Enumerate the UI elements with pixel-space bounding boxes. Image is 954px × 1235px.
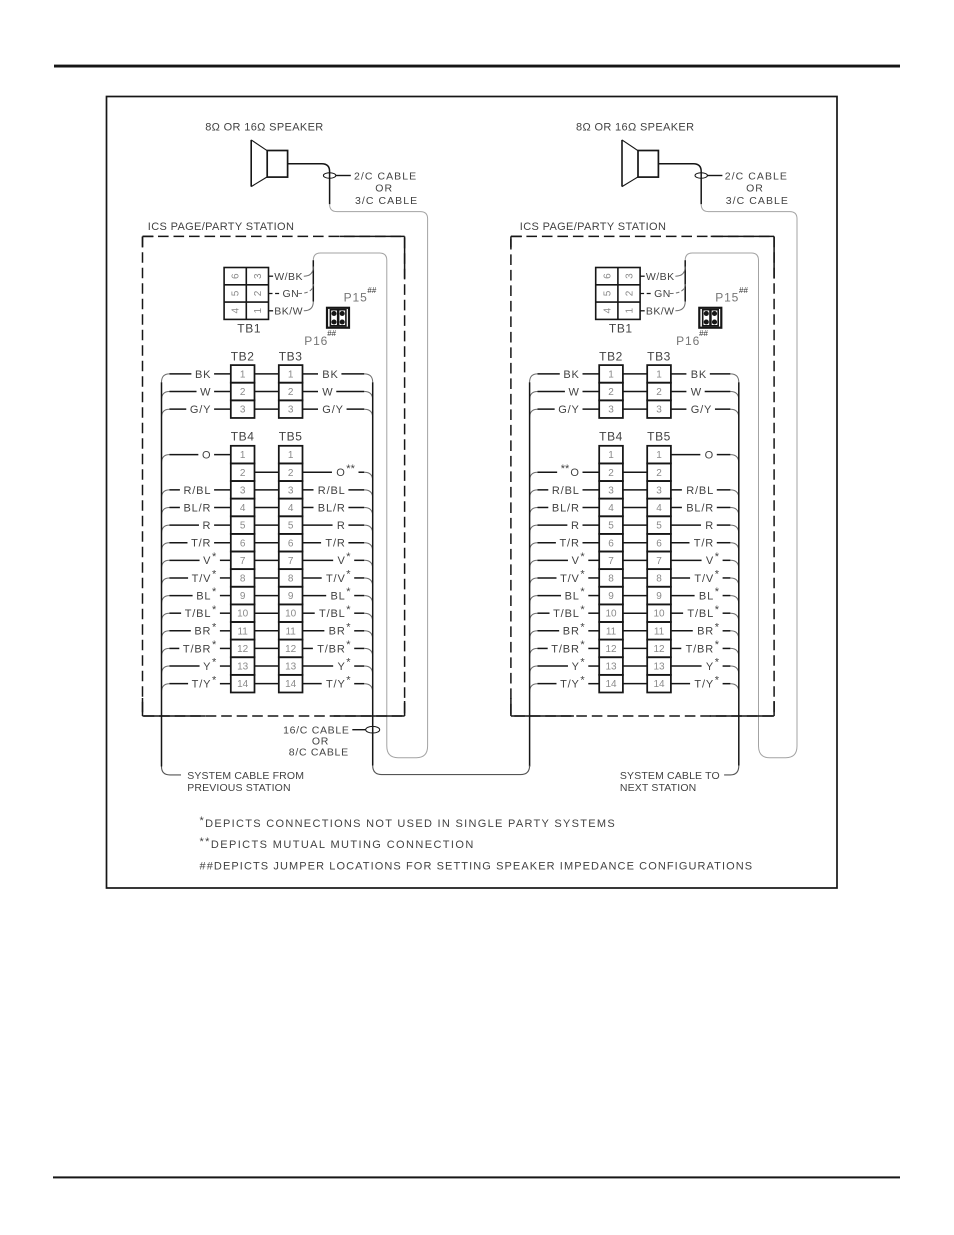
svg-text:*: *	[715, 586, 720, 598]
svg-text:*: *	[580, 657, 585, 669]
svg-text:BL/R: BL/R	[552, 502, 580, 514]
svg-text:1: 1	[240, 450, 246, 461]
svg-text:11: 11	[285, 626, 296, 637]
svg-text:R/BL: R/BL	[552, 485, 580, 497]
svg-text:W: W	[691, 386, 702, 398]
svg-text:BL: BL	[330, 591, 345, 603]
svg-text:6: 6	[240, 538, 246, 549]
svg-text:TB4: TB4	[231, 430, 255, 444]
svg-text:BR: BR	[563, 626, 580, 638]
svg-text:V: V	[203, 555, 211, 567]
svg-text:Y: Y	[572, 661, 580, 673]
svg-text:1: 1	[625, 308, 636, 314]
svg-text:11: 11	[606, 626, 617, 637]
svg-text:GN: GN	[283, 288, 300, 300]
svg-text:**: **	[561, 463, 570, 475]
svg-text:8: 8	[240, 574, 246, 585]
svg-text:Y: Y	[203, 661, 211, 673]
svg-text:W/BK: W/BK	[646, 271, 675, 283]
svg-text:2: 2	[656, 387, 662, 398]
svg-text:4: 4	[608, 503, 614, 514]
svg-text:5: 5	[231, 290, 242, 296]
svg-text:R: R	[571, 520, 580, 532]
svg-text:14: 14	[605, 679, 617, 690]
svg-text:8: 8	[288, 574, 294, 585]
svg-text:4: 4	[656, 503, 662, 514]
svg-text:4: 4	[231, 308, 242, 314]
svg-text:*: *	[715, 657, 720, 669]
svg-text:3/C CABLE: 3/C CABLE	[726, 195, 789, 207]
svg-text:T/R: T/R	[325, 538, 345, 550]
svg-text:6: 6	[608, 538, 614, 549]
svg-text:9: 9	[608, 591, 614, 602]
svg-text:13: 13	[285, 662, 297, 673]
svg-text:W: W	[569, 386, 580, 398]
svg-text:12: 12	[285, 644, 297, 655]
svg-text:5: 5	[656, 521, 662, 532]
svg-text:5: 5	[602, 290, 613, 296]
svg-text:3: 3	[288, 485, 294, 496]
svg-text:6: 6	[602, 273, 613, 279]
svg-text:3/C CABLE: 3/C CABLE	[355, 195, 418, 207]
svg-text:BK/W: BK/W	[646, 306, 675, 318]
svg-text:GN: GN	[654, 288, 671, 300]
svg-text:V: V	[706, 555, 714, 567]
svg-text:*: *	[580, 604, 585, 616]
svg-text:*: *	[346, 657, 351, 669]
svg-text:TB2: TB2	[231, 350, 255, 364]
svg-text:Y: Y	[337, 661, 345, 673]
svg-text:##: ##	[739, 286, 748, 295]
svg-text:2/C CABLE: 2/C CABLE	[725, 170, 788, 182]
svg-text:BL/R: BL/R	[183, 502, 211, 514]
svg-text:6: 6	[288, 538, 294, 549]
svg-text:*: *	[346, 639, 351, 651]
svg-text:7: 7	[608, 556, 614, 567]
svg-text:14: 14	[285, 679, 297, 690]
svg-text:7: 7	[288, 556, 294, 567]
svg-text:2: 2	[253, 290, 264, 296]
svg-text:4: 4	[602, 308, 613, 314]
svg-text:OR: OR	[312, 735, 329, 747]
svg-text:6: 6	[656, 538, 662, 549]
svg-text:13: 13	[653, 662, 665, 673]
svg-text:OR: OR	[746, 183, 764, 195]
svg-text:3: 3	[288, 405, 294, 416]
svg-text:SYSTEM CABLE FROM: SYSTEM CABLE FROM	[187, 770, 304, 782]
svg-text:2: 2	[288, 387, 294, 398]
svg-text:12: 12	[653, 644, 665, 655]
svg-text:3: 3	[625, 273, 636, 279]
svg-text:NEXT STATION: NEXT STATION	[620, 782, 696, 794]
svg-text:8Ω OR 16Ω SPEAKER: 8Ω OR 16Ω SPEAKER	[576, 122, 694, 134]
svg-text:**DEPICTS MUTUAL MUTING CONNEC: **DEPICTS MUTUAL MUTING CONNECTION	[200, 836, 475, 851]
svg-text:7: 7	[656, 556, 662, 567]
svg-text:*: *	[580, 551, 585, 563]
svg-text:6: 6	[231, 273, 242, 279]
svg-text:1: 1	[288, 370, 294, 381]
svg-text:1: 1	[288, 450, 294, 461]
svg-text:G/Y: G/Y	[691, 404, 713, 416]
svg-text:7: 7	[240, 556, 246, 567]
svg-text:*: *	[346, 604, 351, 616]
svg-text:*: *	[580, 569, 585, 581]
svg-text:BL: BL	[196, 591, 211, 603]
svg-text:O: O	[336, 467, 345, 479]
svg-text:*: *	[212, 551, 217, 563]
svg-text:2/C CABLE: 2/C CABLE	[354, 170, 417, 182]
svg-text:3: 3	[608, 405, 614, 416]
svg-text:2: 2	[656, 468, 662, 479]
svg-text:*: *	[715, 639, 720, 651]
svg-text:T/V: T/V	[192, 573, 212, 585]
svg-text:8: 8	[656, 574, 662, 585]
svg-text:T/BL: T/BL	[687, 608, 714, 620]
svg-text:*: *	[580, 586, 585, 598]
svg-text:P15: P15	[344, 291, 368, 305]
svg-text:T/Y: T/Y	[192, 679, 212, 691]
svg-text:*: *	[212, 674, 217, 686]
svg-text:T/BL: T/BL	[185, 608, 212, 620]
svg-text:TB1: TB1	[237, 322, 261, 336]
svg-text:BK: BK	[563, 369, 579, 381]
svg-text:*: *	[580, 639, 585, 651]
svg-text:R/BL: R/BL	[686, 485, 714, 497]
svg-text:BL/R: BL/R	[686, 502, 714, 514]
svg-text:12: 12	[237, 644, 249, 655]
svg-text:5: 5	[288, 521, 294, 532]
svg-text:V: V	[572, 555, 580, 567]
svg-text:BK: BK	[322, 369, 338, 381]
svg-text:P16: P16	[304, 334, 328, 348]
svg-text:*DEPICTS CONNECTIONS NOT USED: *DEPICTS CONNECTIONS NOT USED IN SINGLE …	[200, 815, 617, 830]
svg-text:*: *	[715, 551, 720, 563]
svg-text:13: 13	[237, 662, 249, 673]
svg-text:8: 8	[608, 574, 614, 585]
svg-text:TB1: TB1	[609, 322, 633, 336]
svg-text:11: 11	[237, 626, 248, 637]
svg-text:*: *	[212, 621, 217, 633]
svg-text:T/BL: T/BL	[319, 608, 346, 620]
svg-text:BR: BR	[329, 626, 346, 638]
svg-text:9: 9	[656, 591, 662, 602]
svg-text:*: *	[715, 604, 720, 616]
svg-text:T/V: T/V	[560, 573, 580, 585]
svg-text:14: 14	[653, 679, 665, 690]
svg-text:##: ##	[699, 329, 708, 338]
svg-text:R/BL: R/BL	[183, 485, 211, 497]
svg-text:2: 2	[625, 290, 636, 296]
svg-text:T/BR: T/BR	[317, 643, 345, 655]
svg-text:5: 5	[240, 521, 246, 532]
svg-text:10: 10	[653, 609, 665, 620]
svg-text:*: *	[346, 551, 351, 563]
svg-text:9: 9	[288, 591, 294, 602]
svg-text:10: 10	[285, 609, 297, 620]
svg-text:T/R: T/R	[559, 538, 579, 550]
svg-text:ICS PAGE/PARTY STATION: ICS PAGE/PARTY STATION	[520, 221, 666, 233]
svg-text:1: 1	[253, 308, 264, 314]
svg-text:2: 2	[240, 387, 246, 398]
svg-text:##DEPICTS JUMPER LOCATIONS FOR: ##DEPICTS JUMPER LOCATIONS FOR SETTING S…	[200, 861, 754, 873]
svg-text:*: *	[212, 586, 217, 598]
svg-text:8Ω OR 16Ω SPEAKER: 8Ω OR 16Ω SPEAKER	[205, 122, 323, 134]
svg-text:10: 10	[605, 609, 617, 620]
svg-text:T/BL: T/BL	[553, 608, 580, 620]
svg-text:TB5: TB5	[647, 430, 671, 444]
svg-text:13: 13	[605, 662, 617, 673]
svg-text:W: W	[322, 386, 333, 398]
svg-text:V: V	[337, 555, 345, 567]
svg-text:T/V: T/V	[326, 573, 346, 585]
svg-text:ICS PAGE/PARTY STATION: ICS PAGE/PARTY STATION	[148, 221, 294, 233]
svg-text:BR: BR	[194, 626, 211, 638]
svg-text:W: W	[200, 386, 211, 398]
svg-text:4: 4	[240, 503, 246, 514]
svg-text:14: 14	[237, 679, 249, 690]
svg-text:9: 9	[240, 591, 246, 602]
svg-text:BL: BL	[699, 591, 714, 603]
svg-text:Y: Y	[706, 661, 714, 673]
svg-text:BL/R: BL/R	[318, 502, 346, 514]
svg-text:*: *	[212, 604, 217, 616]
svg-text:BK/W: BK/W	[274, 306, 303, 318]
svg-text:G/Y: G/Y	[190, 404, 212, 416]
svg-text:T/BR: T/BR	[183, 643, 211, 655]
svg-text:P16: P16	[676, 334, 700, 348]
svg-text:3: 3	[608, 485, 614, 496]
svg-text:O: O	[202, 450, 211, 462]
svg-text:3: 3	[253, 273, 264, 279]
svg-text:TB5: TB5	[279, 430, 303, 444]
svg-text:2: 2	[240, 468, 246, 479]
svg-text:*: *	[346, 621, 351, 633]
svg-text:BR: BR	[697, 626, 714, 638]
svg-text:T/Y: T/Y	[560, 679, 580, 691]
svg-text:1: 1	[608, 370, 614, 381]
svg-text:1: 1	[656, 450, 662, 461]
svg-text:*: *	[212, 569, 217, 581]
svg-text:T/V: T/V	[694, 573, 714, 585]
svg-text:BK: BK	[691, 369, 707, 381]
svg-text:*: *	[715, 569, 720, 581]
svg-text:**: **	[346, 463, 355, 475]
svg-text:3: 3	[656, 405, 662, 416]
svg-text:2: 2	[608, 468, 614, 479]
svg-text:*: *	[580, 674, 585, 686]
svg-text:T/R: T/R	[191, 538, 211, 550]
svg-text:T/R: T/R	[694, 538, 714, 550]
svg-text:BK: BK	[195, 369, 211, 381]
svg-text:G/Y: G/Y	[322, 404, 344, 416]
svg-text:1: 1	[240, 370, 246, 381]
svg-text:W/BK: W/BK	[274, 271, 303, 283]
svg-text:R/BL: R/BL	[318, 485, 346, 497]
svg-text:##: ##	[367, 286, 376, 295]
svg-text:2: 2	[288, 468, 294, 479]
svg-text:1: 1	[608, 450, 614, 461]
svg-text:O: O	[570, 467, 579, 479]
svg-text:BL: BL	[565, 591, 580, 603]
svg-text:OR: OR	[375, 183, 393, 195]
svg-text:P15: P15	[715, 291, 739, 305]
svg-text:*: *	[346, 586, 351, 598]
svg-text:11: 11	[654, 626, 665, 637]
svg-text:*: *	[580, 621, 585, 633]
svg-text:12: 12	[605, 644, 617, 655]
svg-text:10: 10	[237, 609, 249, 620]
svg-text:T/BR: T/BR	[551, 643, 579, 655]
svg-text:TB3: TB3	[279, 350, 303, 364]
svg-text:TB4: TB4	[599, 430, 623, 444]
svg-text:R: R	[705, 520, 714, 532]
svg-text:2: 2	[608, 387, 614, 398]
svg-text:3: 3	[240, 485, 246, 496]
svg-text:*: *	[212, 657, 217, 669]
svg-text:T/BR: T/BR	[686, 643, 714, 655]
svg-text:TB3: TB3	[647, 350, 671, 364]
svg-text:4: 4	[288, 503, 294, 514]
svg-text:*: *	[715, 674, 720, 686]
svg-text:3: 3	[656, 485, 662, 496]
svg-text:G/Y: G/Y	[558, 404, 580, 416]
svg-text:PREVIOUS STATION: PREVIOUS STATION	[187, 782, 291, 794]
svg-text:TB2: TB2	[599, 350, 623, 364]
svg-text:R: R	[203, 520, 212, 532]
svg-text:*: *	[715, 621, 720, 633]
svg-text:SYSTEM CABLE TO: SYSTEM CABLE TO	[620, 770, 720, 782]
svg-text:T/Y: T/Y	[326, 679, 346, 691]
svg-text:T/Y: T/Y	[694, 679, 714, 691]
svg-text:*: *	[212, 639, 217, 651]
svg-text:##: ##	[327, 329, 336, 338]
svg-text:R: R	[337, 520, 346, 532]
svg-text:8/C CABLE: 8/C CABLE	[289, 747, 349, 759]
svg-text:1: 1	[656, 370, 662, 381]
svg-text:3: 3	[240, 405, 246, 416]
svg-text:O: O	[705, 450, 714, 462]
svg-text:5: 5	[608, 521, 614, 532]
svg-text:*: *	[346, 674, 351, 686]
svg-text:*: *	[346, 569, 351, 581]
